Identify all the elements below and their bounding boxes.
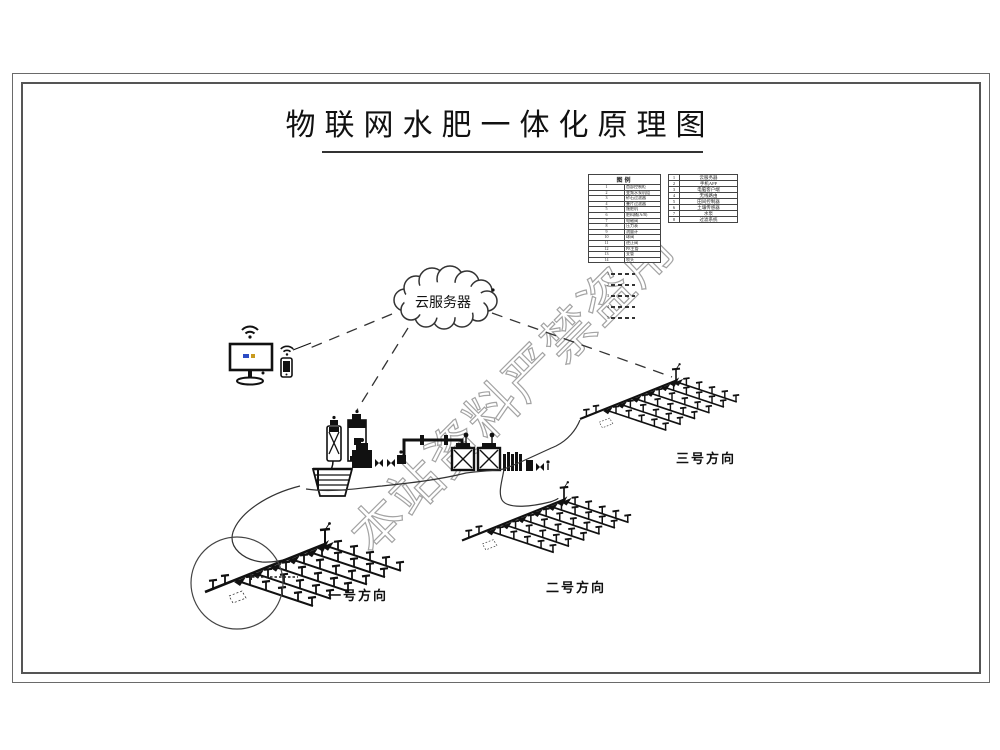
linetype-row: 4 <box>600 301 635 312</box>
linetype-dash <box>611 306 635 308</box>
legend-row: 8过滤系统 <box>669 217 738 223</box>
field2-label: 二号方向 <box>546 577 606 596</box>
linetype-row: 1 <box>600 268 635 279</box>
cloud-dot <box>491 288 494 291</box>
legend-linetypes: 1 2 3 4 5 <box>600 268 635 323</box>
link-cloud-to-station <box>357 328 408 410</box>
supply-line-field2 <box>500 469 558 506</box>
legend-title: 图例 <box>589 175 661 185</box>
monitor-icon <box>230 327 272 385</box>
linetype-dash <box>611 295 635 297</box>
valve-icon <box>375 459 383 467</box>
water-basin-icon <box>313 468 352 496</box>
filter-unit-icon <box>452 433 474 470</box>
link-cloud-to-field3 <box>492 313 672 377</box>
cloud-server-label: 云服务器 <box>398 292 488 312</box>
field-grid-2 <box>462 481 631 552</box>
field3-label: 三号方向 <box>676 448 736 467</box>
link-cloud-to-pc <box>310 314 392 348</box>
outlet-valve-icon <box>526 460 533 471</box>
valve-icon <box>536 463 544 471</box>
field1-label: 一号方向 <box>328 585 388 604</box>
phone-icon <box>281 343 311 377</box>
wifi-icon <box>242 327 258 339</box>
head-station <box>313 410 550 496</box>
drawing-sheet: 物联网水肥一体化原理图 本站资料严禁盗用 <box>0 0 1000 750</box>
linetype-dash <box>611 317 635 319</box>
linetype-dash <box>611 284 635 286</box>
filter-unit-icon <box>478 433 500 470</box>
wifi-icon <box>281 346 293 355</box>
legend-row: 14喷头 <box>589 257 661 263</box>
page-title: 物联网水肥一体化原理图 <box>0 100 1000 144</box>
linetype-row: 3 <box>600 290 635 301</box>
linetype-row: 5 <box>600 312 635 323</box>
title-underline <box>322 151 703 153</box>
legend-table-secondary: 1云服务器 2手机APP 3电脑客户端 4无线路由 5田 <box>668 174 738 223</box>
linetype-dash <box>611 273 635 275</box>
linetype-row: 2 <box>600 279 635 290</box>
fertilizer-tank-a-icon <box>327 416 341 461</box>
legend-table-main: 图例 1首部控制柜 2变频水泵机组 3砂石过滤器 <box>588 174 661 263</box>
valve-icon <box>387 459 395 467</box>
